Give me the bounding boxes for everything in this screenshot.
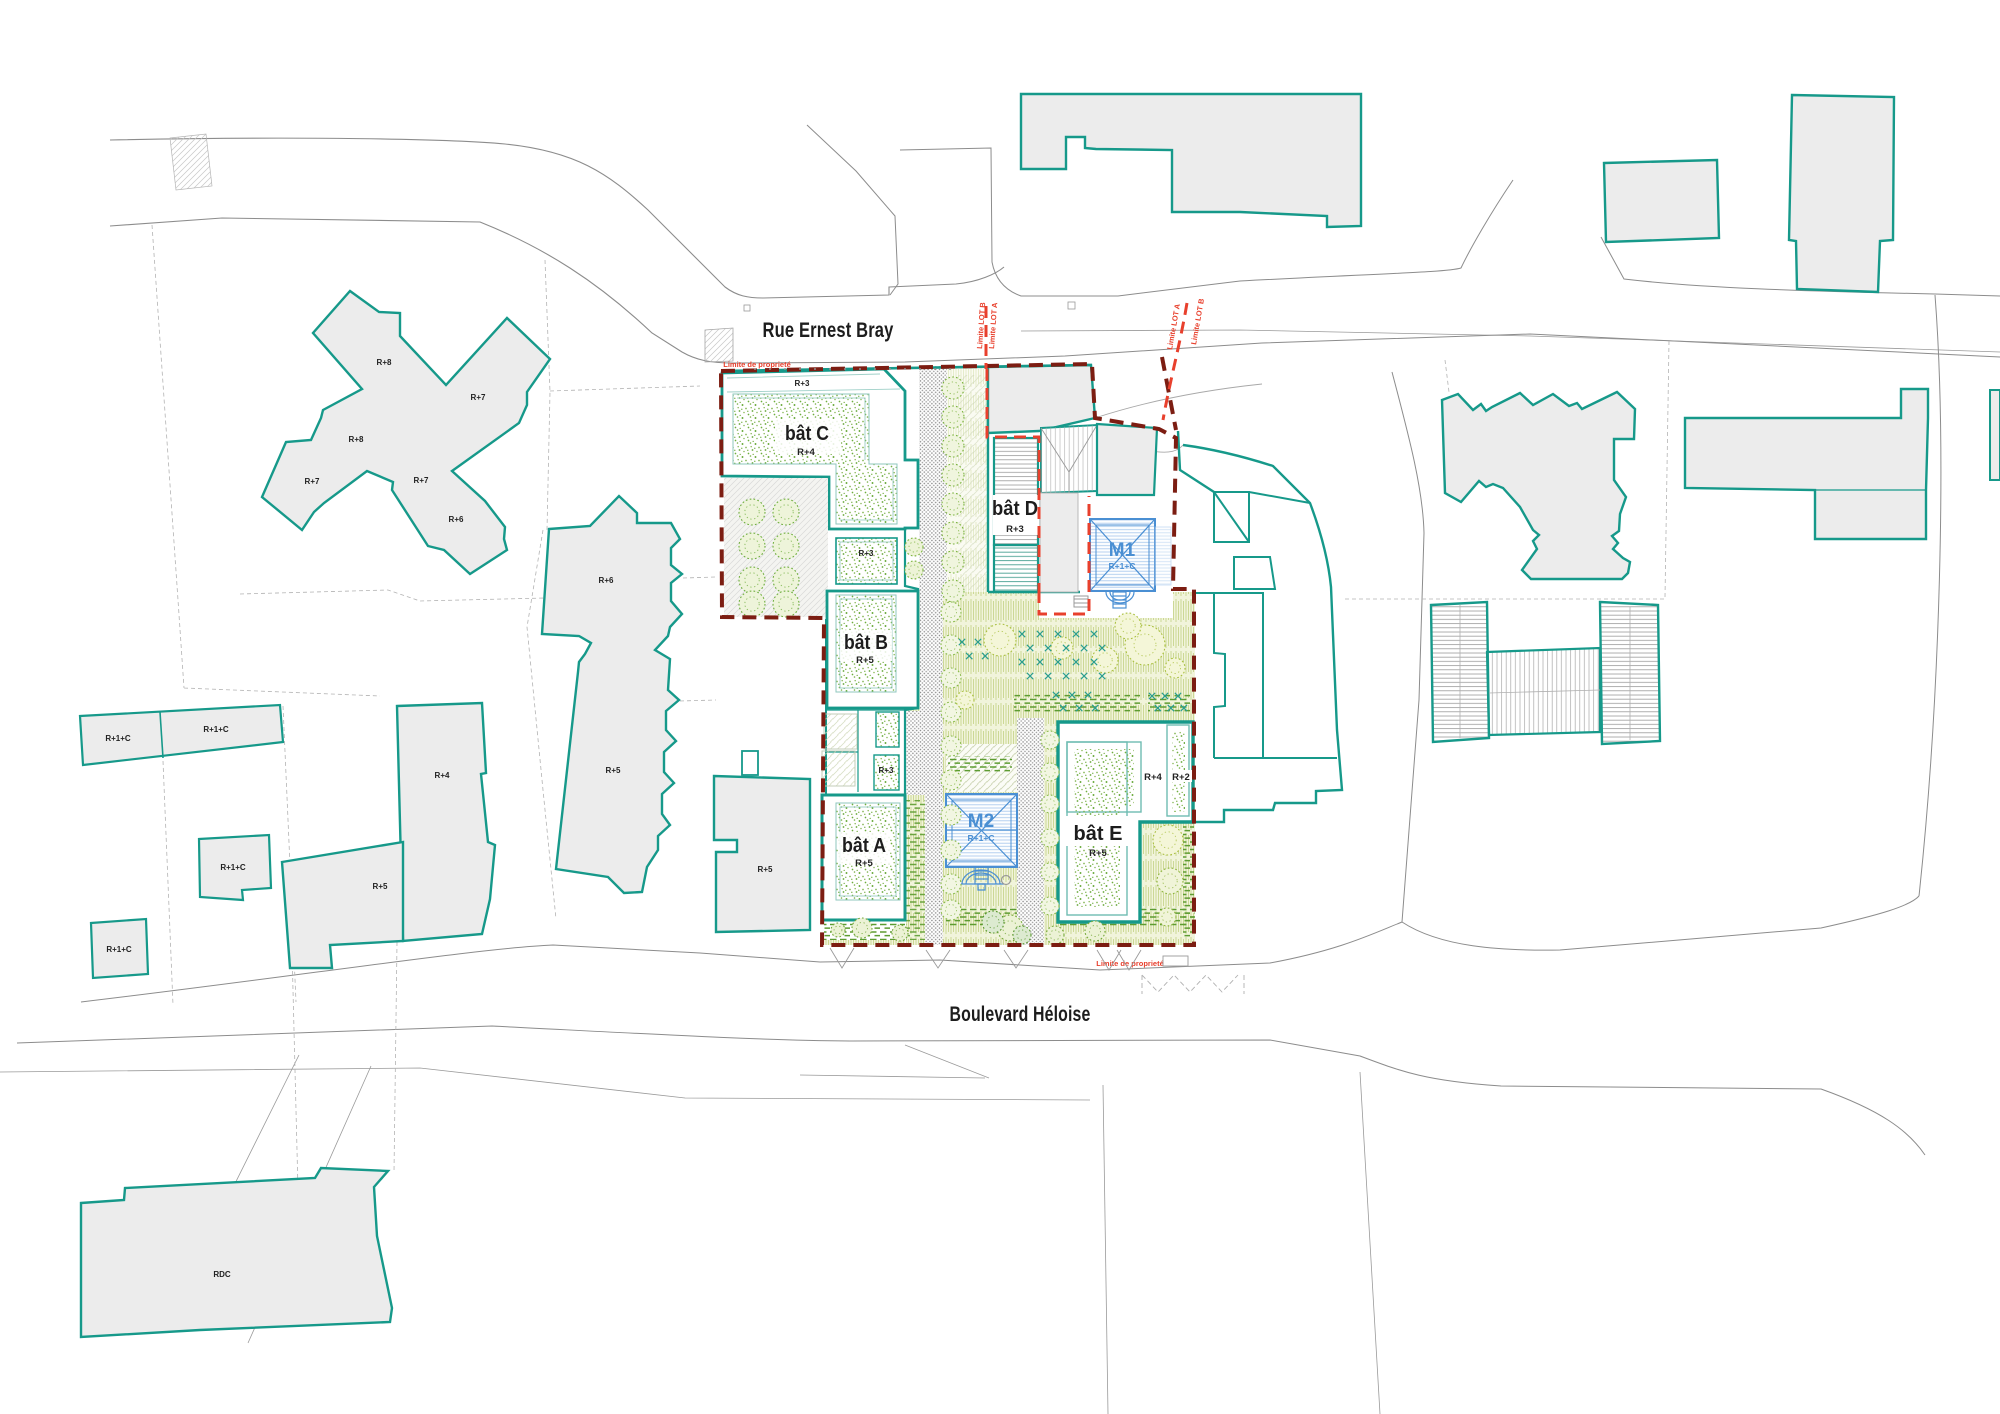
svg-text:R+5: R+5 — [606, 766, 621, 775]
svg-text:R+8: R+8 — [349, 435, 364, 444]
svg-text:R+1+C: R+1+C — [220, 863, 246, 872]
svg-text:R+5: R+5 — [856, 655, 874, 666]
svg-text:R+3: R+3 — [879, 766, 894, 775]
svg-text:bât C: bât C — [785, 423, 829, 445]
svg-text:R+4: R+4 — [797, 447, 815, 458]
svg-text:R+6: R+6 — [449, 515, 464, 524]
svg-text:bât A: bât A — [842, 835, 886, 857]
svg-text:R+5: R+5 — [1089, 848, 1107, 859]
svg-text:R+6: R+6 — [599, 576, 614, 585]
svg-text:Limite de proprieté: Limite de proprieté — [723, 360, 791, 369]
svg-text:R+3: R+3 — [859, 549, 874, 558]
svg-text:R+1+C: R+1+C — [203, 725, 229, 734]
svg-text:Rue Ernest Bray: Rue Ernest Bray — [763, 319, 894, 342]
svg-text:R+7: R+7 — [471, 393, 486, 402]
svg-text:RDC: RDC — [213, 1270, 231, 1279]
svg-text:R+1+C: R+1+C — [1109, 561, 1136, 571]
svg-text:R+8: R+8 — [377, 358, 392, 367]
svg-text:R+3: R+3 — [795, 379, 810, 388]
svg-text:R+1+C: R+1+C — [106, 945, 132, 954]
svg-text:R+1+C: R+1+C — [968, 833, 995, 843]
svg-text:Limite de proprieté: Limite de proprieté — [1096, 959, 1164, 968]
svg-text:R+3: R+3 — [1006, 524, 1024, 535]
svg-text:R+1+C: R+1+C — [105, 734, 131, 743]
svg-text:R+7: R+7 — [305, 477, 320, 486]
svg-text:R+5: R+5 — [855, 858, 873, 869]
svg-text:R+4: R+4 — [435, 771, 450, 780]
svg-text:M1: M1 — [1109, 540, 1136, 561]
svg-text:bât B: bât B — [844, 632, 888, 654]
svg-text:M2: M2 — [968, 811, 994, 832]
svg-text:Boulevard Héloise: Boulevard Héloise — [950, 1003, 1091, 1026]
svg-text:R+2: R+2 — [1172, 772, 1190, 783]
svg-text:R+5: R+5 — [373, 882, 388, 891]
svg-text:R+4: R+4 — [1144, 772, 1162, 783]
svg-text:bât E: bât E — [1074, 823, 1123, 845]
svg-text:R+7: R+7 — [414, 476, 429, 485]
svg-text:bât D: bât D — [992, 498, 1038, 520]
svg-text:R+5: R+5 — [758, 865, 773, 874]
